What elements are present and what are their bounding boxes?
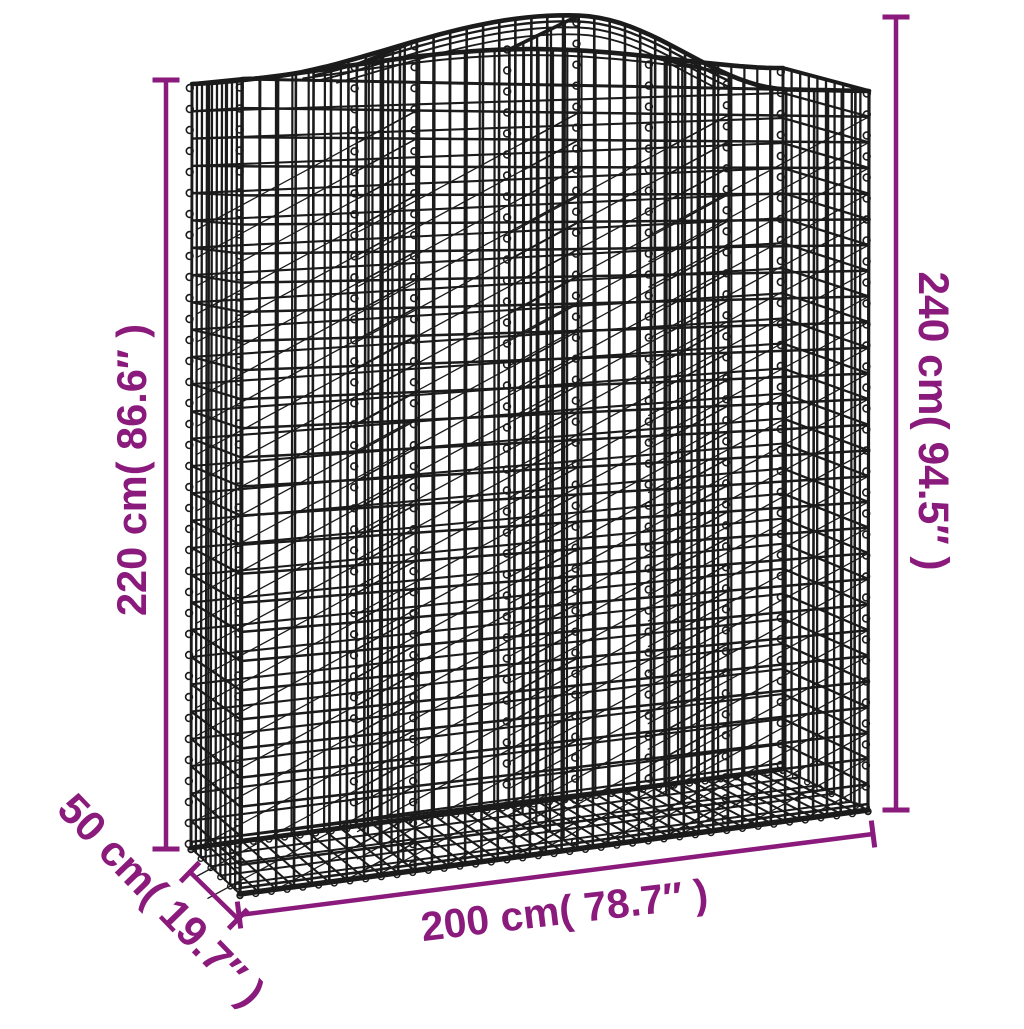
svg-text:240 cm( 94.5″ ): 240 cm( 94.5″ ) bbox=[909, 271, 956, 570]
svg-text:220 cm( 86.6″ ): 220 cm( 86.6″ ) bbox=[108, 324, 155, 616]
